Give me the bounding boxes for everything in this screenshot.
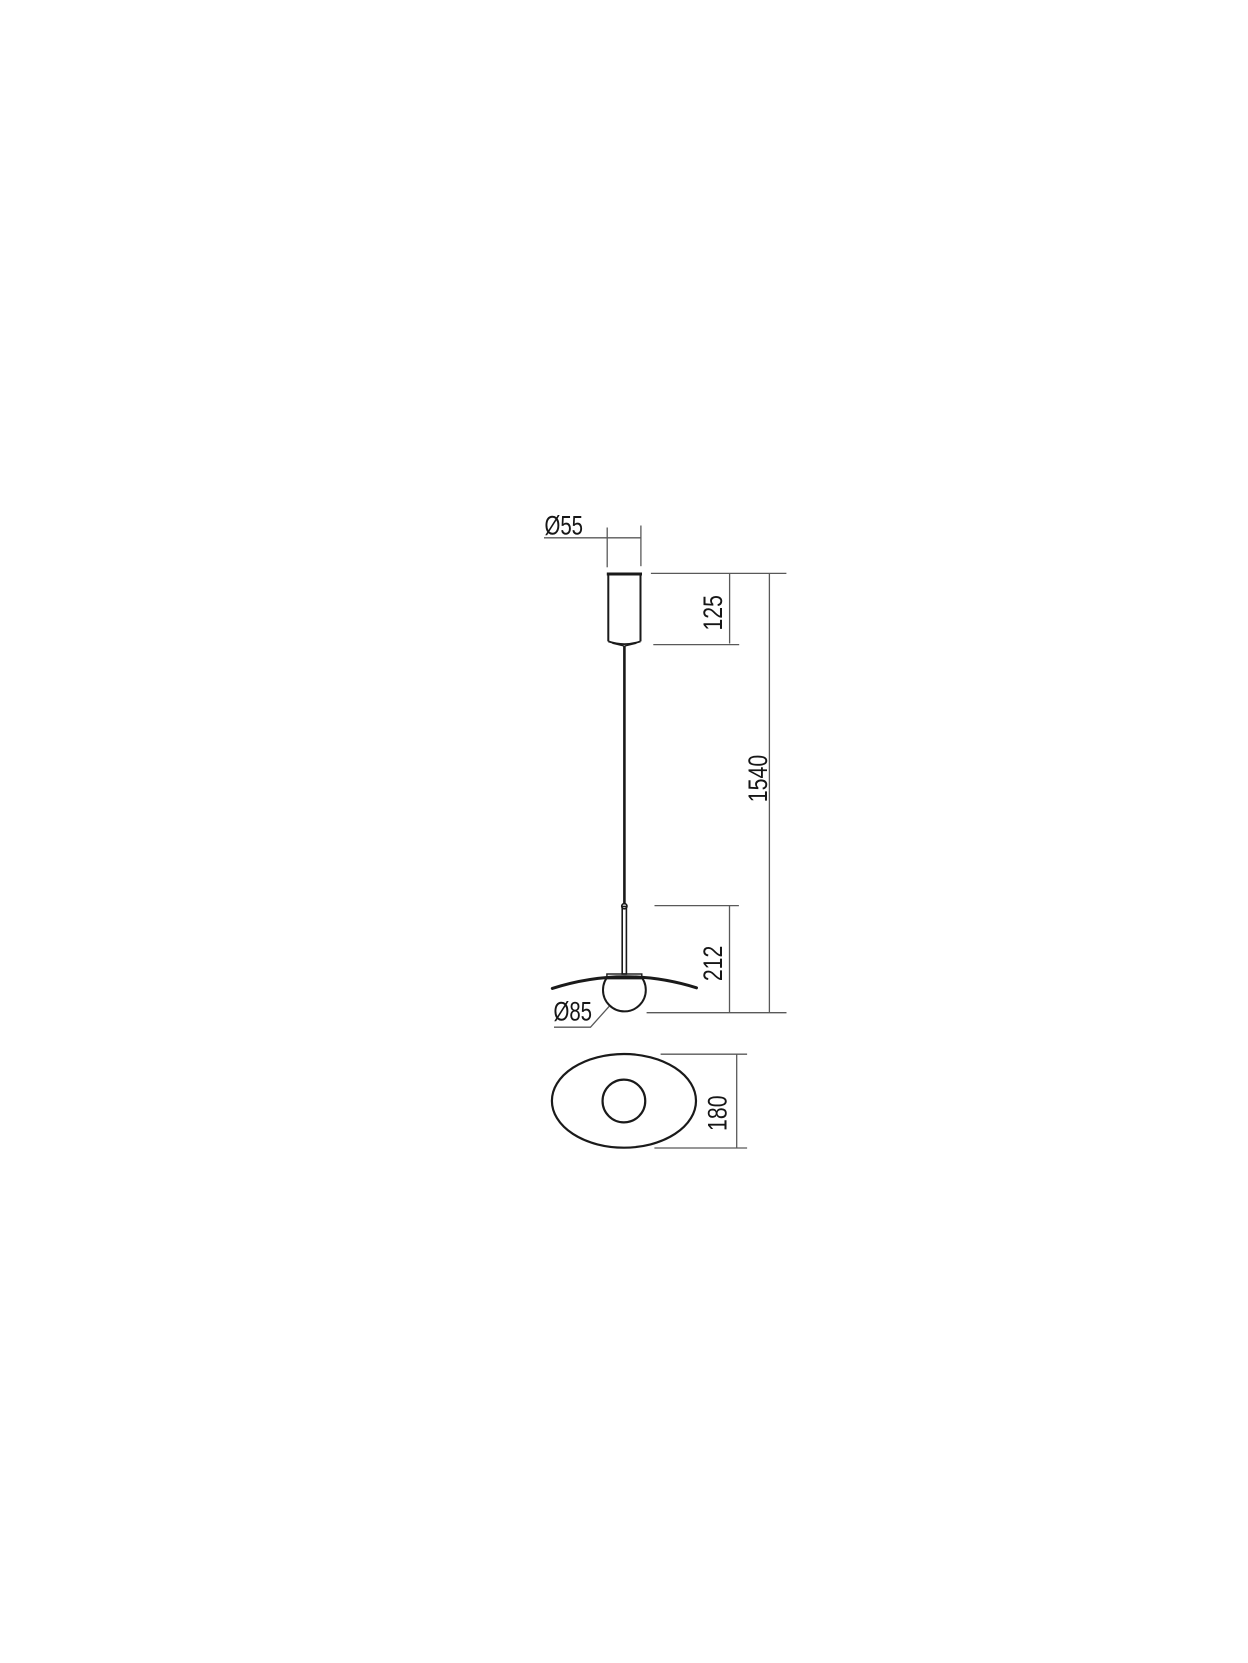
svg-text:180: 180 [703, 1095, 733, 1131]
svg-text:Ø85: Ø85 [554, 997, 593, 1027]
svg-text:Ø55: Ø55 [545, 511, 584, 541]
svg-text:1540: 1540 [743, 755, 773, 803]
svg-text:125: 125 [698, 595, 728, 631]
svg-text:212: 212 [698, 946, 728, 982]
